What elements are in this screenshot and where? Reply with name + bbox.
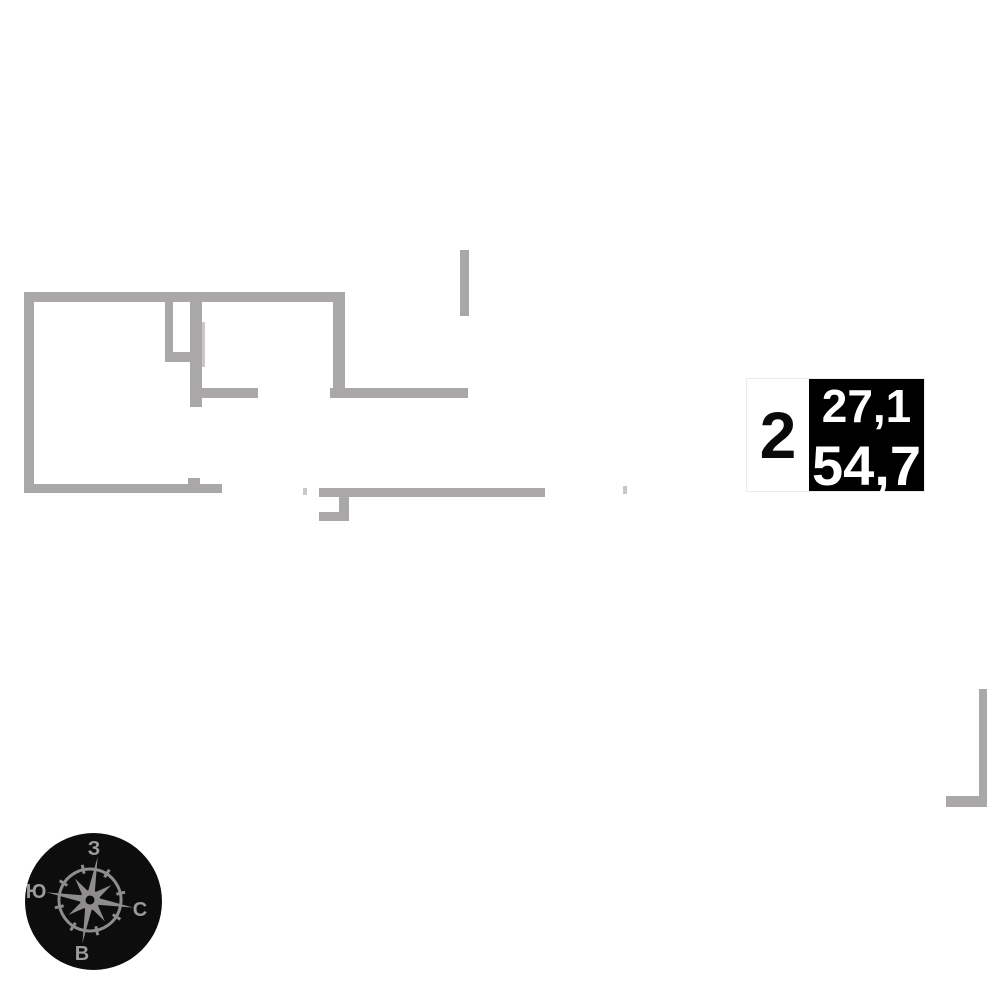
lower-area-value: 54,7 (809, 433, 924, 498)
wall-hook-horizontal (319, 512, 349, 521)
unit-card[interactable]: 2 27,1 54,7 (746, 378, 925, 492)
compass-label-west: З (88, 838, 101, 860)
rooms-count: 2 (747, 379, 809, 491)
wall-left (24, 292, 34, 493)
compass-label-east: В (75, 943, 89, 965)
wall-lower-horizontal (330, 388, 468, 398)
wall-room-right-vertical (333, 292, 345, 390)
wall-bottom-middle (319, 488, 545, 497)
area-box: 27,1 54,7 (809, 379, 924, 491)
wall-right-edge-vertical (979, 689, 987, 807)
compass-rose-icon: З Ю С В (24, 832, 163, 971)
wall-free-vertical (460, 250, 469, 316)
wall-bottom-left (24, 484, 222, 493)
compass-label-north: С (133, 899, 147, 921)
wall-interior-vertical (190, 292, 202, 407)
wall-top (24, 292, 345, 302)
door-mark-left (303, 488, 307, 495)
compass-label-south: Ю (26, 881, 47, 903)
door-mark-right (623, 486, 627, 494)
door-opening-line (202, 322, 205, 367)
wall-bottom-left-stub (188, 478, 200, 484)
wall-closet-connector (165, 352, 190, 362)
floorplan-page: 2 27,1 54,7 З Ю С В (0, 0, 1000, 1000)
wall-right-edge-horizontal (946, 796, 987, 807)
upper-area-value: 27,1 (809, 379, 924, 433)
wall-hall-horizontal (202, 388, 258, 398)
